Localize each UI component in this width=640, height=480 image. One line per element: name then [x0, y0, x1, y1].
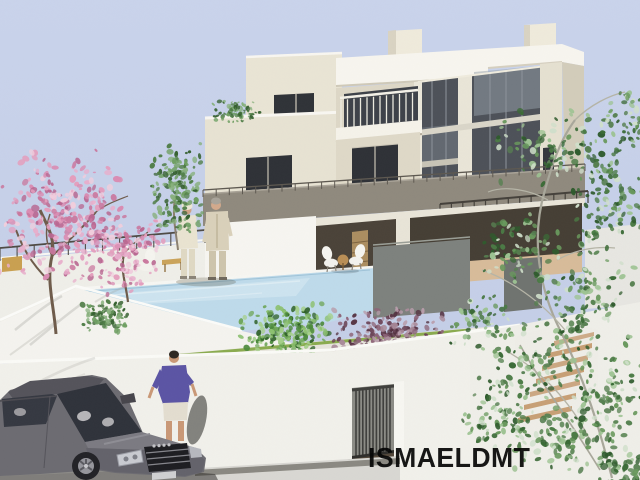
watermark: ISMAELDMT: [368, 442, 615, 474]
grain-overlay: [0, 0, 640, 480]
architectural-rendering: ISMAELDMT: [0, 0, 640, 480]
rendering-canvas: [0, 0, 640, 480]
